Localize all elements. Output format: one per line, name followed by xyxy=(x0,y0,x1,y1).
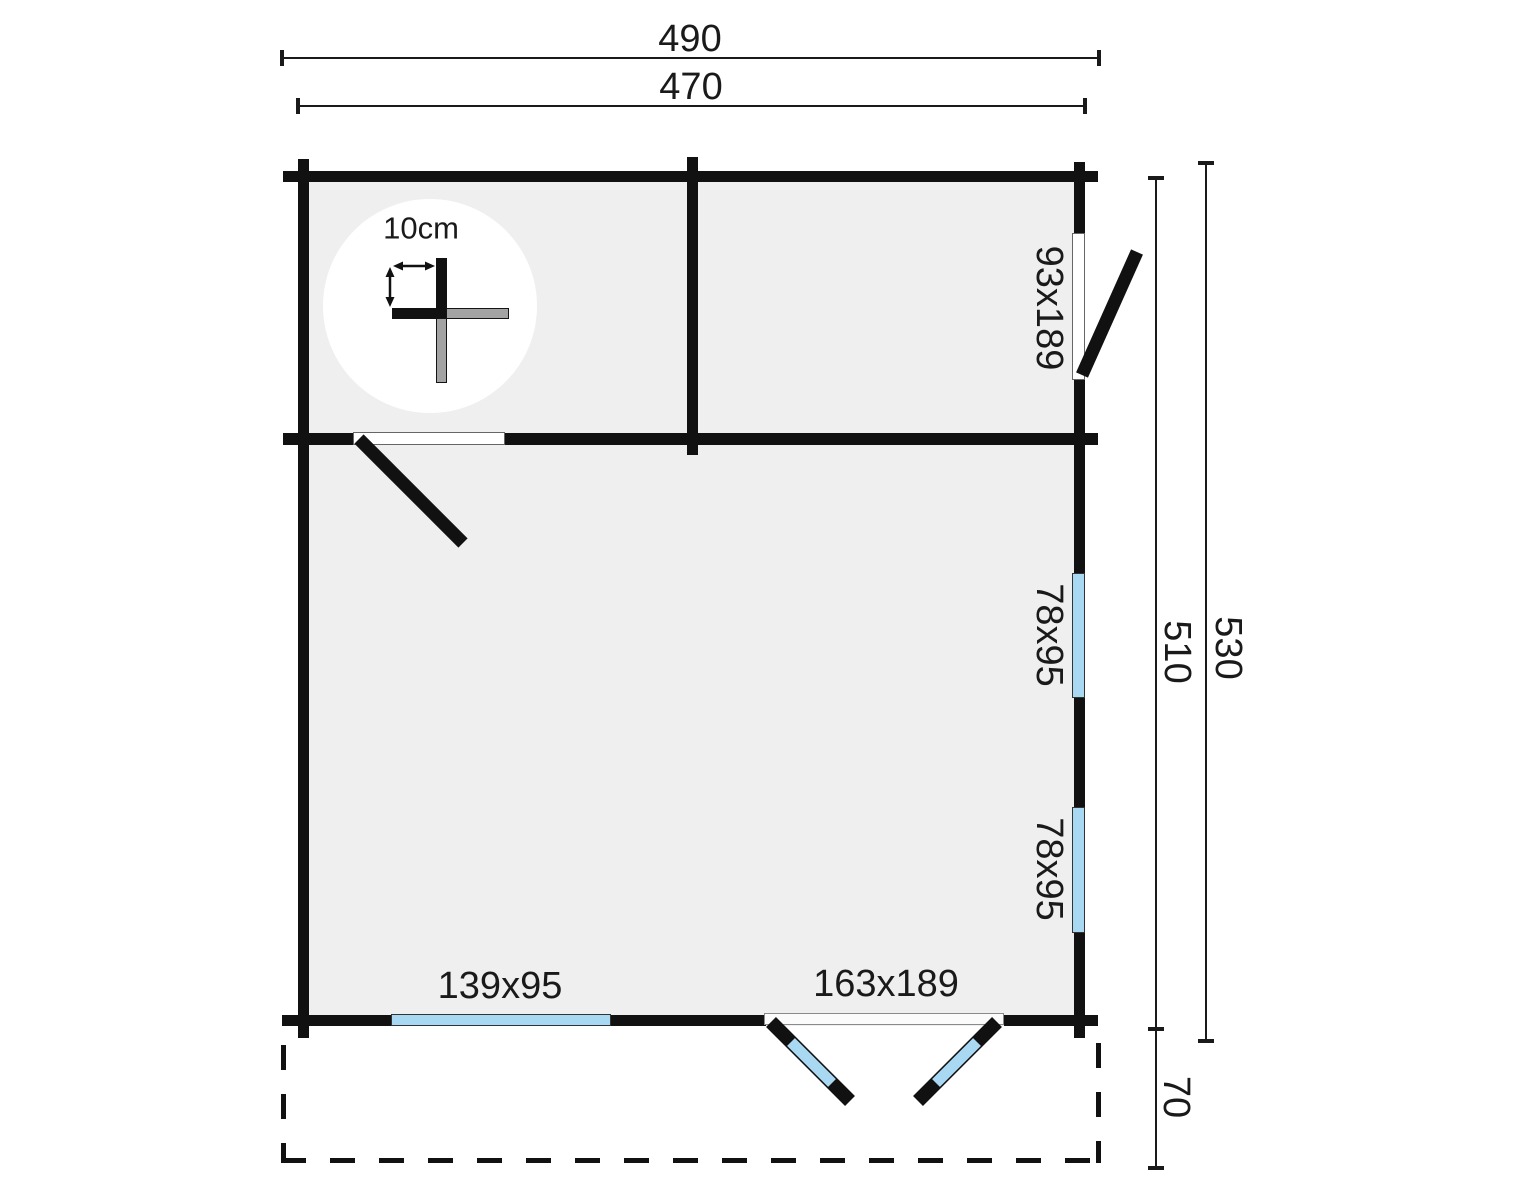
partition-wall-right xyxy=(504,433,1098,445)
wall-right-segment xyxy=(1074,698,1085,807)
dim-label-top-outer: 490 xyxy=(658,20,721,58)
bottom-door-threshold xyxy=(764,1013,1004,1025)
bottom-window xyxy=(391,1014,611,1026)
right-window-bottom xyxy=(1072,807,1085,933)
dim-tick xyxy=(1148,176,1164,180)
wall-bottom-segment xyxy=(282,1015,392,1026)
bottom-door-right-leaf-glass xyxy=(936,1042,977,1083)
right-window-bottom-size-label: 78x95 xyxy=(1030,817,1068,921)
dim-tick xyxy=(1148,1166,1164,1170)
right-window-top xyxy=(1072,573,1085,698)
interior-door-opening xyxy=(353,432,505,445)
dimension-line-height-outer xyxy=(1205,163,1207,1041)
dim-tick xyxy=(296,98,300,114)
bottom-door-left-leaf-glass xyxy=(791,1042,832,1083)
dim-tick xyxy=(280,50,284,66)
right-door-opening xyxy=(1072,233,1085,380)
right-door-size-label: 93x189 xyxy=(1030,246,1068,371)
right-window-top-size-label: 78x95 xyxy=(1030,583,1068,687)
partition-wall-vertical xyxy=(687,157,698,455)
wall-thickness-label: 10cm xyxy=(383,213,459,244)
dim-tick xyxy=(1198,1039,1214,1043)
bottom-door-size-label: 163x189 xyxy=(813,965,959,1003)
dim-tick xyxy=(1148,1027,1164,1031)
partition-wall-left xyxy=(283,433,354,445)
log-cross-gray-vertical xyxy=(436,318,447,383)
dim-tick xyxy=(1198,161,1214,165)
wall-bottom-segment xyxy=(610,1015,766,1026)
wall-right-segment xyxy=(1074,162,1085,235)
wall-bottom-segment xyxy=(1004,1015,1098,1026)
wall-right-segment xyxy=(1074,380,1085,573)
log-cross-gray-horizontal xyxy=(446,308,509,319)
dim-label-right-outer: 530 xyxy=(1209,616,1247,679)
wall-left xyxy=(298,159,309,1038)
bottom-window-size-label: 139x95 xyxy=(438,967,563,1005)
dim-tick xyxy=(1083,98,1087,114)
bottom-door-left-leaf xyxy=(771,1022,850,1101)
dim-label-top-inner: 470 xyxy=(659,68,722,106)
bottom-door-right-leaf xyxy=(918,1022,997,1101)
right-door-leaf xyxy=(1082,252,1137,375)
dimension-line-height-inner xyxy=(1155,178,1157,1029)
dim-label-terrace: 70 xyxy=(1157,1076,1195,1118)
dim-label-right-inner: 510 xyxy=(1158,620,1196,683)
dim-tick xyxy=(1097,50,1101,66)
floor-plan: 490 470 510 530 70 93x189 78x95 78x95 13… xyxy=(0,0,1530,1188)
